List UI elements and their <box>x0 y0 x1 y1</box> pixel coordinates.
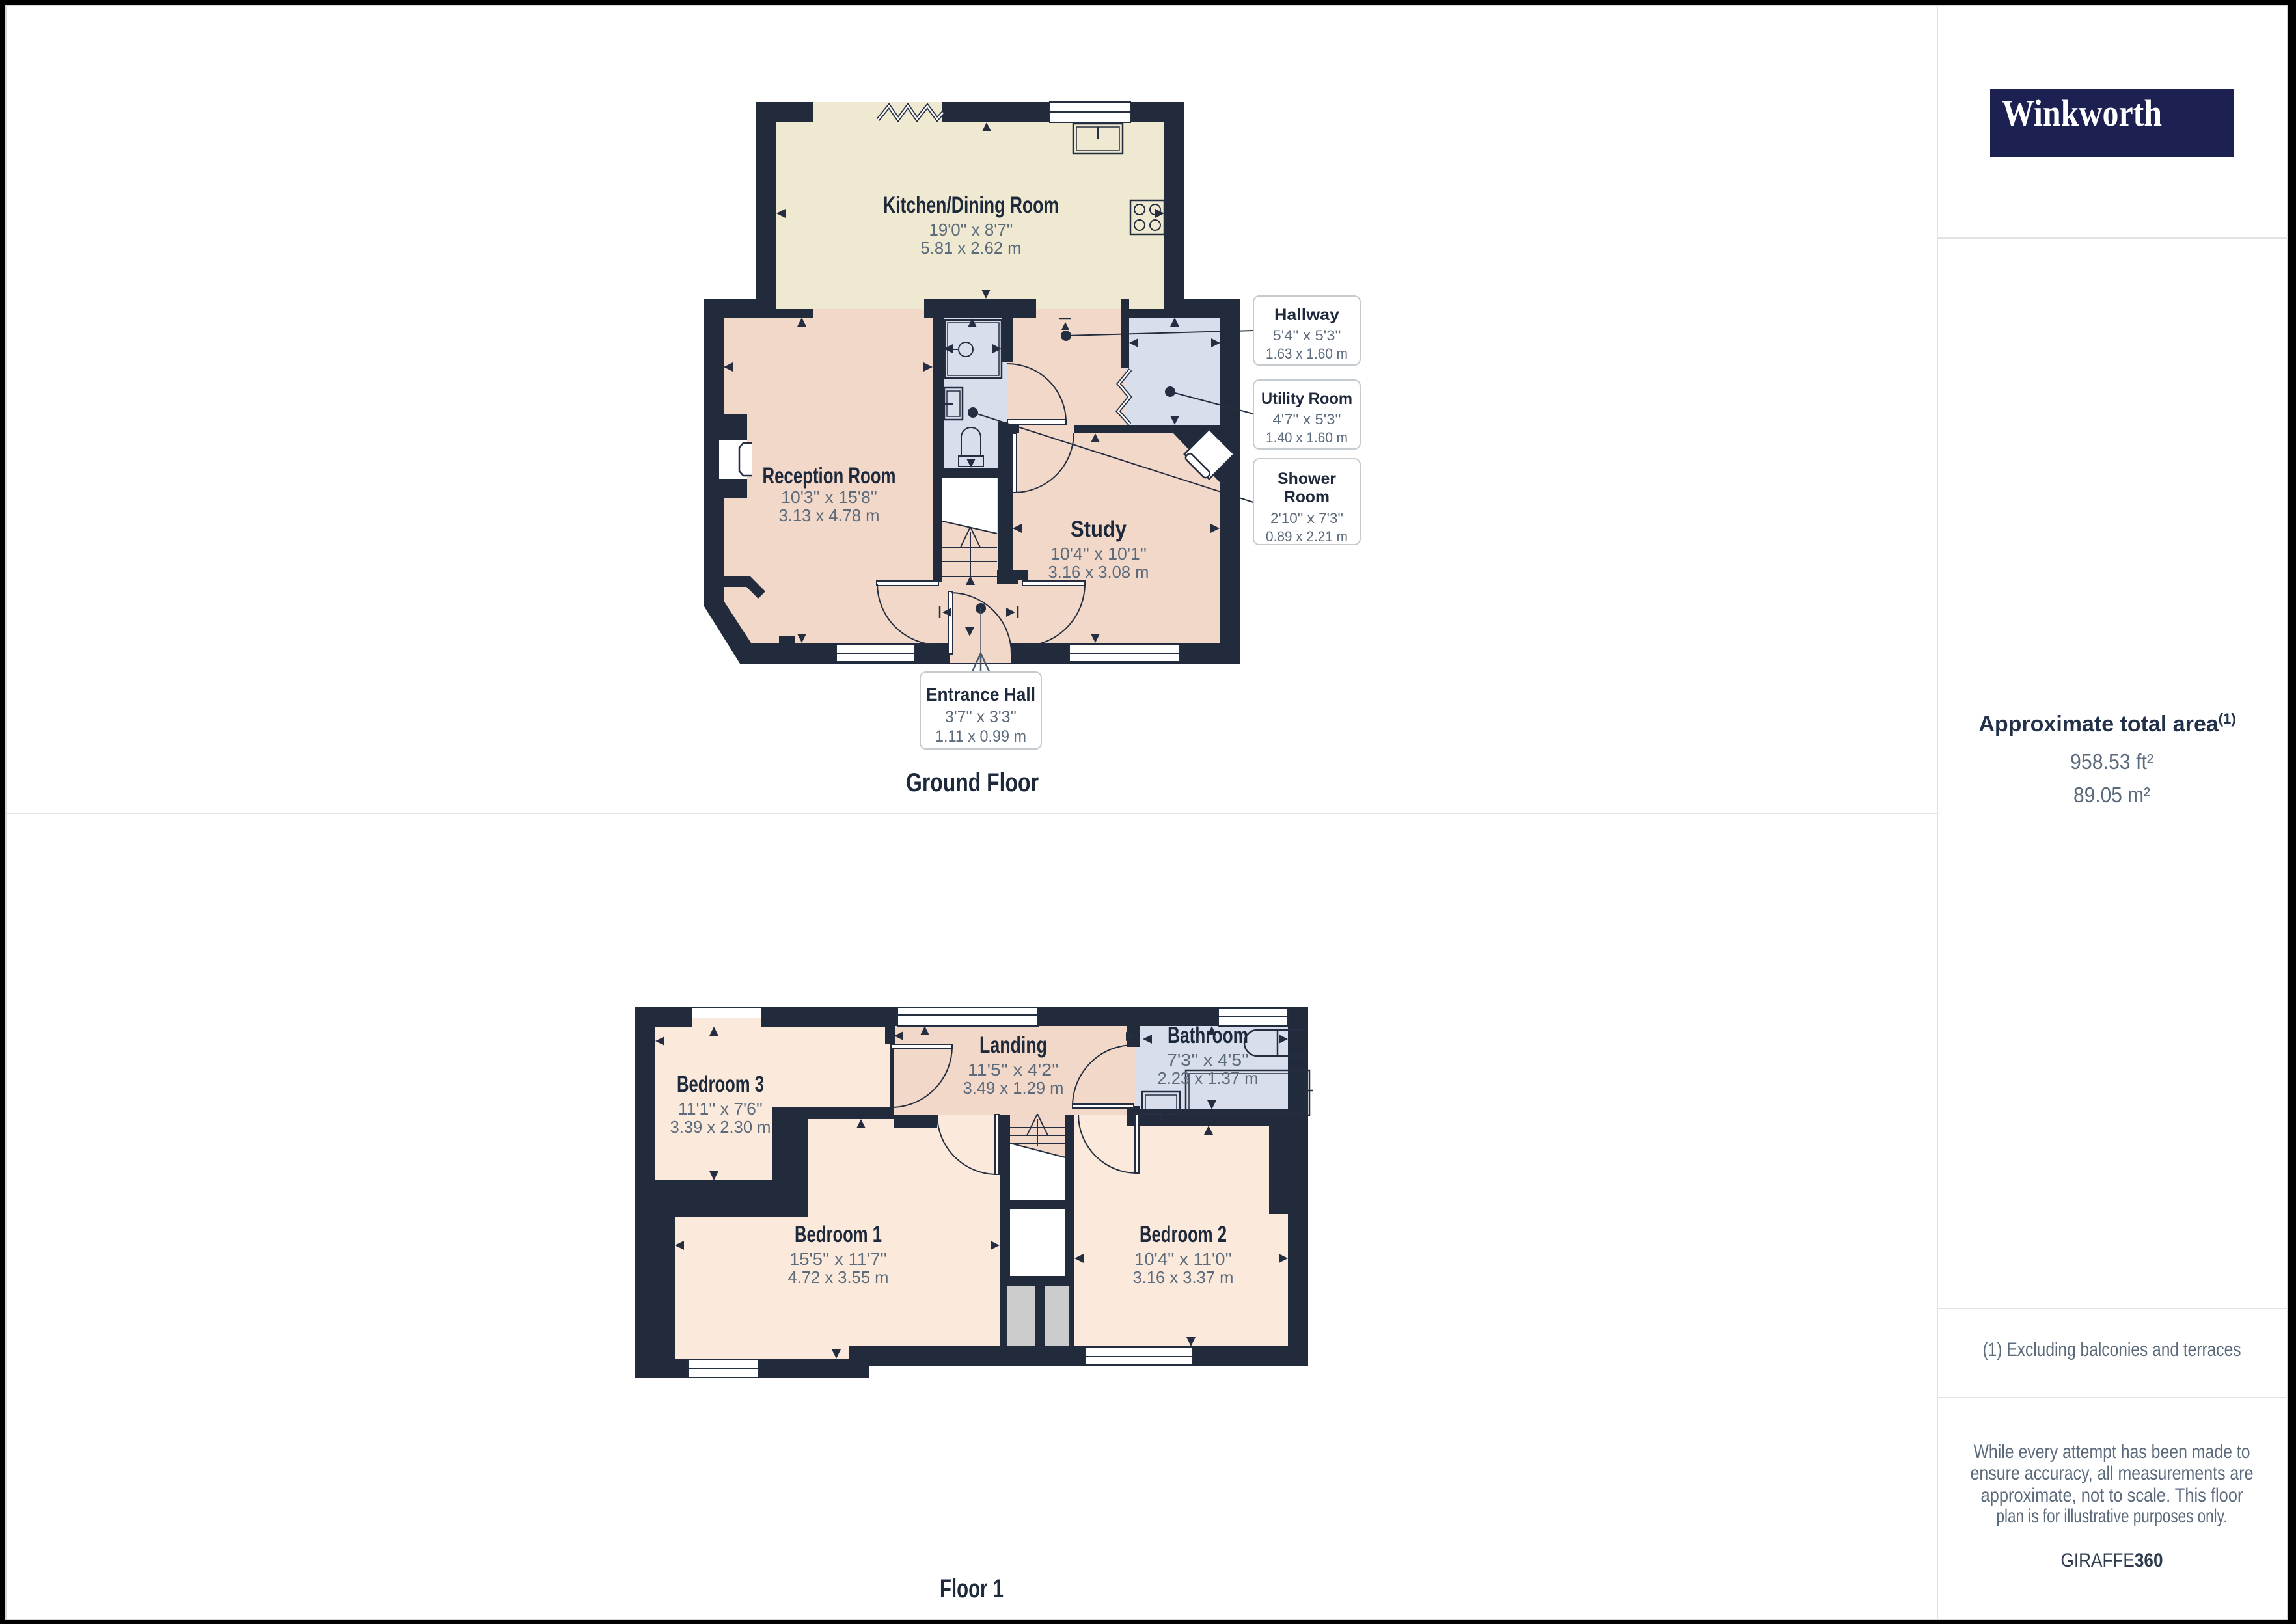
svg-text:Bedroom 1: Bedroom 1 <box>795 1222 882 1247</box>
svg-text:15'5'' x 11'7'': 15'5'' x 11'7'' <box>789 1249 887 1269</box>
svg-text:Bedroom 2: Bedroom 2 <box>1140 1222 1227 1247</box>
svg-text:5'4'' x 5'3'': 5'4'' x 5'3'' <box>1273 327 1341 344</box>
svg-text:Landing: Landing <box>979 1033 1047 1058</box>
svg-text:plan is for illustrative purpo: plan is for illustrative purposes only. <box>1997 1506 2228 1527</box>
svg-text:Entrance Hall: Entrance Hall <box>926 684 1035 705</box>
svg-text:Kitchen/Dining Room: Kitchen/Dining Room <box>883 193 1059 218</box>
svg-text:89.05 m²: 89.05 m² <box>2073 783 2150 807</box>
svg-text:10'3'' x 15'8'': 10'3'' x 15'8'' <box>781 487 877 507</box>
svg-text:Room: Room <box>1284 488 1330 506</box>
svg-text:While every attempt has been m: While every attempt has been made to <box>1974 1441 2250 1463</box>
svg-text:3.49 x 1.29 m: 3.49 x 1.29 m <box>963 1078 1064 1098</box>
svg-text:10'4'' x 11'0'': 10'4'' x 11'0'' <box>1134 1249 1232 1269</box>
svg-text:GIRAFFE360: GIRAFFE360 <box>2061 1550 2163 1571</box>
svg-text:1.40 x 1.60 m: 1.40 x 1.60 m <box>1266 429 1348 446</box>
svg-text:3'7'' x 3'3'': 3'7'' x 3'3'' <box>945 708 1017 726</box>
svg-text:4.72 x 3.55 m: 4.72 x 3.55 m <box>788 1267 889 1287</box>
svg-text:Bedroom 3: Bedroom 3 <box>677 1072 764 1097</box>
svg-text:Winkworth: Winkworth <box>2002 92 2162 134</box>
svg-text:Bathroom: Bathroom <box>1168 1023 1248 1048</box>
svg-text:Floor 1: Floor 1 <box>940 1575 1004 1603</box>
svg-text:11'1'' x 7'6'': 11'1'' x 7'6'' <box>678 1099 763 1118</box>
svg-text:5.81 x 2.62 m: 5.81 x 2.62 m <box>921 238 1022 258</box>
svg-text:1.11 x 0.99 m: 1.11 x 0.99 m <box>935 727 1026 746</box>
svg-text:Utility Room: Utility Room <box>1261 390 1352 408</box>
svg-text:1.63 x 1.60 m: 1.63 x 1.60 m <box>1266 345 1348 362</box>
svg-text:11'5'' x 4'2'': 11'5'' x 4'2'' <box>968 1060 1059 1079</box>
svg-text:Approximate total area(1): Approximate total area(1) <box>1978 710 2235 737</box>
svg-text:958.53 ft²: 958.53 ft² <box>2070 750 2153 774</box>
svg-text:3.39 x 2.30 m: 3.39 x 2.30 m <box>670 1117 771 1137</box>
svg-text:4'7'' x 5'3'': 4'7'' x 5'3'' <box>1273 411 1341 427</box>
svg-text:3.16 x 3.08 m: 3.16 x 3.08 m <box>1048 562 1149 582</box>
svg-text:(1) Excluding balconies and te: (1) Excluding balconies and terraces <box>1983 1339 2241 1360</box>
svg-text:Shower: Shower <box>1278 470 1336 488</box>
svg-text:2'10'' x 7'3'': 2'10'' x 7'3'' <box>1270 510 1343 526</box>
svg-text:Ground Floor: Ground Floor <box>906 768 1039 797</box>
svg-text:Reception Room: Reception Room <box>763 463 896 489</box>
svg-text:Study: Study <box>1071 517 1127 542</box>
svg-text:2.23 x 1.37 m: 2.23 x 1.37 m <box>1158 1068 1259 1088</box>
svg-text:Hallway: Hallway <box>1274 306 1339 324</box>
svg-text:3.16 x 3.37 m: 3.16 x 3.37 m <box>1133 1267 1234 1287</box>
svg-text:19'0'' x 8'7'': 19'0'' x 8'7'' <box>929 220 1013 239</box>
svg-text:0.89 x 2.21 m: 0.89 x 2.21 m <box>1266 528 1348 545</box>
svg-text:10'4'' x 10'1'': 10'4'' x 10'1'' <box>1050 544 1147 563</box>
svg-text:approximate, not to scale. Thi: approximate, not to scale. This floor <box>1981 1485 2243 1506</box>
svg-text:ensure accuracy, all measureme: ensure accuracy, all measurements are <box>1971 1463 2254 1484</box>
svg-text:3.13 x 4.78 m: 3.13 x 4.78 m <box>779 506 880 525</box>
svg-text:7'3'' x 4'5'': 7'3'' x 4'5'' <box>1167 1050 1249 1070</box>
